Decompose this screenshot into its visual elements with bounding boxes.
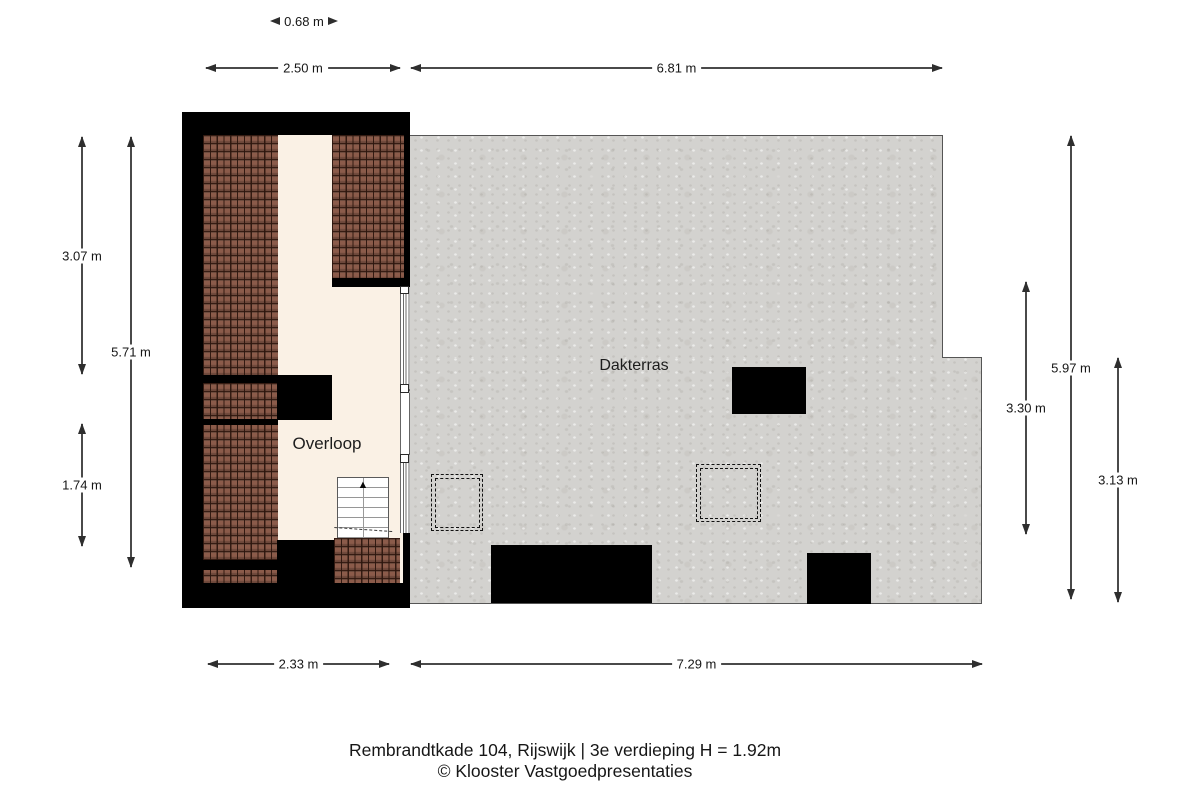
dimension-corridor-width: 0.68 m	[254, 12, 354, 30]
dimension-right-terrace-height-label: 3.30 m	[1001, 401, 1051, 416]
title-line2: © Klooster Vastgoedpresentaties	[165, 761, 965, 782]
dim-arrow-right-icon	[328, 17, 338, 25]
dimension-bottom-left-width-label: 2.33 m	[274, 657, 324, 672]
dim-arrow-down-icon	[78, 364, 86, 375]
dakterras-label: Dakterras	[559, 357, 709, 375]
dimension-left-lower-height: 1.74 m	[74, 423, 90, 547]
dimension-left-full-height: 5.71 m	[123, 136, 139, 568]
dimension-right-full-height-label: 5.97 m	[1046, 360, 1096, 375]
door-jamb-top	[400, 286, 409, 294]
dimension-top-right-width-label: 6.81 m	[652, 61, 702, 76]
dimension-top-right-width: 6.81 m	[410, 60, 943, 76]
dim-arrow-up-icon	[1067, 135, 1075, 146]
overloop-label: Overloop	[267, 434, 387, 454]
chimney-block	[277, 375, 332, 420]
rooftop-object-2	[491, 545, 652, 603]
wall-band-right	[332, 278, 410, 287]
dim-arrow-left-icon	[205, 64, 216, 72]
skylight-dashed-1	[431, 474, 483, 531]
dim-arrow-down-icon	[1114, 592, 1122, 603]
rooftop-object-3	[807, 553, 871, 604]
dim-arrow-right-icon	[932, 64, 943, 72]
dim-arrow-down-icon	[1022, 524, 1030, 535]
dimension-right-terrace-height: 3.30 m	[1018, 281, 1034, 535]
roof-tiles-lower	[334, 538, 400, 583]
dimension-left-upper-height-label: 3.07 m	[57, 248, 107, 263]
dimension-left-full-height-label: 5.71 m	[106, 345, 156, 360]
skylight-dashed-2-inner	[700, 468, 758, 519]
rooftop-object-1	[732, 367, 806, 414]
dim-arrow-down-icon	[127, 557, 135, 568]
dim-arrow-left-icon	[207, 660, 218, 668]
dim-arrow-up-icon	[127, 136, 135, 147]
dimension-left-lower-height-label: 1.74 m	[57, 478, 107, 493]
corner-wall-block	[277, 540, 337, 608]
dim-arrow-left-icon	[410, 660, 421, 668]
dim-arrow-up-icon	[1022, 281, 1030, 292]
stairs-up-arrow-icon: ▲	[358, 480, 369, 491]
terrace-upper	[410, 135, 943, 358]
dimension-right-full-height: 5.97 m	[1063, 135, 1079, 600]
dim-arrow-up-icon	[1114, 357, 1122, 368]
title-block: Rembrandtkade 104, Rijswijk | 3e verdiep…	[165, 740, 965, 782]
dimension-bottom-left-width: 2.33 m	[207, 656, 390, 672]
dim-arrow-left-icon	[410, 64, 421, 72]
skylight-dashed-1-inner	[435, 478, 480, 528]
floor-plan-canvas: ▲ Overloop Dakterras 0.68 m 2.50 m 6.81 …	[0, 0, 1200, 800]
wall-divider-lower	[203, 560, 278, 570]
wall-divider-upper	[203, 375, 278, 383]
dim-arrow-right-icon	[379, 660, 390, 668]
dim-arrow-up-icon	[78, 136, 86, 147]
skylight-dashed-2	[696, 464, 761, 522]
dimension-right-lower-height: 3.13 m	[1110, 357, 1126, 603]
terrace-step-edge	[943, 357, 982, 359]
dimension-right-lower-height-label: 3.13 m	[1093, 473, 1143, 488]
dimension-top-left-width-label: 2.50 m	[278, 61, 328, 76]
dim-arrow-down-icon	[78, 536, 86, 547]
dim-arrow-down-icon	[1067, 589, 1075, 600]
dim-arrow-right-icon	[972, 660, 983, 668]
title-line1: Rembrandtkade 104, Rijswijk | 3e verdiep…	[165, 740, 965, 761]
dim-arrow-right-icon	[390, 64, 401, 72]
dimension-bottom-right-width-label: 7.29 m	[672, 657, 722, 672]
dim-arrow-left-icon	[270, 17, 280, 25]
wall-divider-mid	[203, 419, 278, 425]
dimension-bottom-right-width: 7.29 m	[410, 656, 983, 672]
dim-arrow-up-icon	[78, 423, 86, 434]
roof-tiles-left	[203, 135, 278, 583]
dimension-left-upper-height: 3.07 m	[74, 136, 90, 375]
roof-tiles-right-upper	[332, 135, 404, 278]
dimension-top-left-width: 2.50 m	[205, 60, 401, 76]
dimension-corridor-width-label: 0.68 m	[284, 14, 324, 29]
